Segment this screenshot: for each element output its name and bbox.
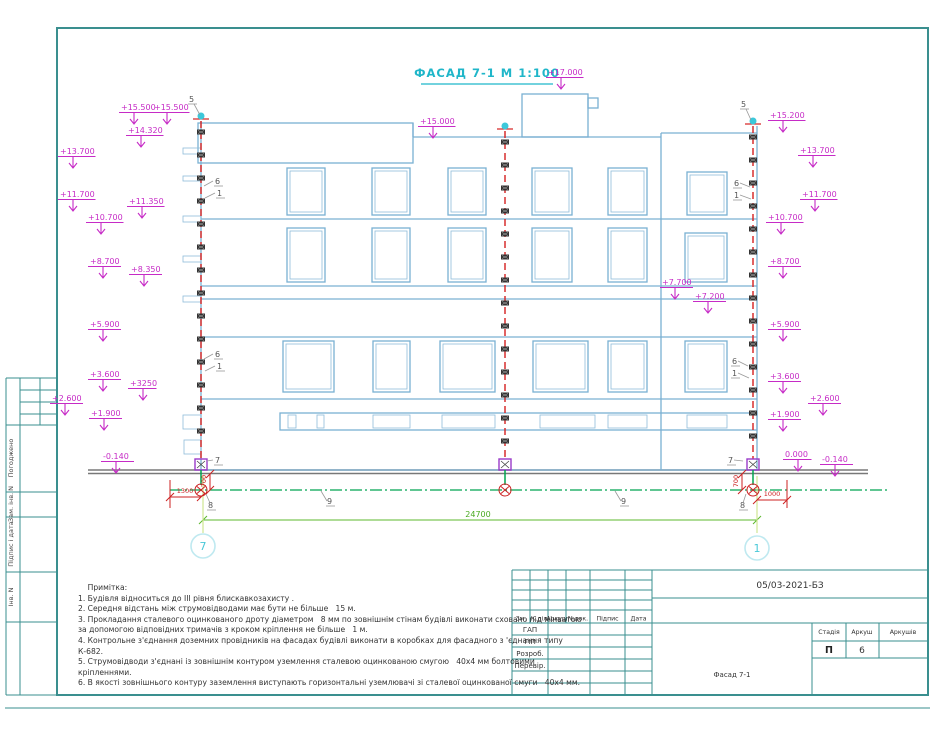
note-line: за допомогою відповідних тримачів з крок… [78,625,518,636]
callout-label: 7 [728,456,733,465]
window [440,341,495,392]
strip-window [687,415,727,428]
strip-window [540,415,595,428]
window-inner [375,231,407,279]
elevation-mark-text: -0.140 [103,452,129,461]
window-inner [286,344,331,389]
callout-leader [207,460,213,461]
elevation-mark-text: +8.700 [90,257,120,266]
red-dimension-text: 1300 [177,487,194,495]
document-number: 05/03-2021-БЗ [756,581,824,591]
side-strip-label: Підпис і дата [7,521,15,566]
elevation-mark-text: +14.320 [128,126,163,135]
callout-label: 1 [732,369,737,378]
strip-window [288,415,296,428]
overall-dimension-value: 24700 [465,510,490,519]
window [685,233,727,282]
strip-window [317,415,324,428]
window [608,168,647,215]
elevation-mark-text: +8.350 [131,265,161,274]
note-line: 2. Середня відстань між струмовідводами … [78,604,518,615]
callout-leader [194,104,200,115]
red-dimension-text: 1000 [764,490,781,498]
elevation-mark-text: +1.900 [91,409,121,418]
elevation-mark-text: +5.900 [90,320,120,329]
sheet-value: 6 [859,646,865,656]
window [373,341,410,392]
drawing-sheet: ФАСАД 7-1 М 1:100 24700 7 1 05/03-2021-Б… [0,0,935,748]
note-line: 1. Будівля відноситься до ІІІ рівня блис… [78,594,518,605]
elevation-mark-text: +1.900 [770,410,800,419]
facade-stub [183,296,201,302]
note-line: Примітка: [78,583,518,594]
callout-label: 8 [208,501,213,510]
window [372,168,410,215]
window-inner [290,171,322,212]
note-line: 6. В якості зовнішнього контуру заземлен… [78,678,518,689]
sheet-label: Аркуш [851,629,873,636]
conductor-cap [502,123,509,130]
elevation-mark-text: +10.700 [88,213,123,222]
elevation-mark-text: +3250 [130,379,157,388]
window-inner [611,171,644,212]
stamp-header-cell: Дата [630,616,646,623]
window-inner [611,344,644,389]
callout-label: 6 [732,357,737,366]
building-rect [588,98,598,108]
red-dimension-text: 700 [732,475,740,487]
elevation-mark-text: +15.000 [420,117,455,126]
drawing-title: ФАСАД 7-1 М 1:100 [414,66,560,80]
window [687,172,727,215]
elevation-mark-text: +15.500 [154,103,189,112]
window [685,341,727,392]
elevation-mark-text: +15.500 [121,103,156,112]
callout-leader [204,354,213,359]
stage-value: П [825,645,833,656]
window [448,168,486,215]
elevation-mark-text: +11.700 [802,190,837,199]
elevation-mark-text: +15.200 [770,111,805,120]
window [283,341,334,392]
window-inner [290,231,322,279]
note-line: К-682. [78,647,518,658]
elevation-mark-text: +5.900 [770,320,800,329]
callout-label: 5 [741,100,746,109]
elevation-mark-text: -0.140 [822,455,848,464]
callout-label: 1 [734,191,739,200]
callout-label: 6 [215,350,220,359]
notes-block: Примітка:1. Будівля відноситься до ІІІ р… [78,583,518,689]
facade-stub [183,415,201,429]
callout-leader [205,193,215,198]
conductor-cap [198,113,205,120]
callout-leader [746,109,751,120]
callout-leader [615,491,621,501]
callout-label: 7 [215,456,220,465]
window-inner [535,231,569,279]
note-line: 5. Струмовідводи з'єднані із зовнішнім к… [78,657,518,668]
window-inner [535,171,569,212]
callout-label: 1 [217,189,222,198]
window-inner [690,175,724,212]
side-strip-label: Погоджено [7,439,15,478]
joint-cross [501,461,509,468]
drawing-name: Фасад 7-1 [714,671,751,679]
elevation-mark-text: +2.600 [810,394,840,403]
side-strip-label: Зам. інв. N [7,486,15,522]
callout-leader [734,460,743,461]
elevation-mark-text: +17.000 [548,68,583,77]
callout-leader [738,373,749,378]
callout-label: 1 [217,362,222,371]
elevation-mark-text: +3.600 [770,372,800,381]
facade-stub [183,216,201,222]
window-inner [536,344,585,389]
facade-stub [183,256,201,262]
callout-label: 6 [734,179,739,188]
window [372,228,410,282]
callout-label: 5 [189,95,194,104]
window-inner [688,236,724,279]
callout-leader [740,195,751,199]
building-rect [198,123,413,163]
ground-electrode-hatch [501,487,509,494]
window-inner [376,344,407,389]
window-inner [451,231,483,279]
strip-window [442,415,495,428]
axis-number-left: 7 [200,540,207,553]
window [532,228,572,282]
red-dimension-lines [166,470,791,508]
callout-leader [740,183,750,187]
callout-leader [321,491,327,501]
callout-leader [204,181,213,186]
window [533,341,588,392]
window [532,168,572,215]
callout-label: 9 [621,497,626,506]
window-inner [443,344,492,389]
window-inner [688,344,724,389]
joint-cross [749,461,757,468]
callout-leader [738,361,748,366]
stamp-header-cell: Підпис [596,615,619,623]
elevation-mark-text: +2.600 [52,394,82,403]
window-inner [375,171,407,212]
strip-window [608,415,647,428]
window [287,228,325,282]
building-rect [280,413,757,430]
callout-label: 6 [215,177,220,186]
stamp-role-label: ГАП [523,626,537,634]
callout-label: 9 [327,497,332,506]
building-rect [522,94,588,137]
elevation-mark-text: +13.700 [800,146,835,155]
window [608,228,647,282]
window [448,228,486,282]
window-inner [451,171,483,212]
window [287,168,325,215]
stage-label: Стадія [818,628,840,636]
elevation-mark-text: +11.350 [129,197,164,206]
callout-leader [205,366,215,371]
elevation-mark-text: +13.700 [60,147,95,156]
window [608,341,647,392]
elevation-mark-text: +7.700 [662,278,692,287]
facade-stub [184,440,201,454]
sheets-label: Аркушів [890,628,917,636]
window-inner [611,231,644,279]
red-dimension-text: 700 [200,475,208,487]
note-line: 3. Прокладання сталевого оцинкованого др… [78,615,518,626]
callout-label: 8 [740,501,745,510]
elevation-mark-text: +7.200 [695,292,725,301]
axis-number-right: 1 [754,542,761,555]
elevation-mark-text: +3.600 [90,370,120,379]
side-strip-label: Інв. N [7,587,15,606]
elevation-mark-text: 0.000 [785,450,808,459]
elevation-mark-text: +11.700 [60,190,95,199]
note-line: 4. Контрольне з'єднання доземних провідн… [78,636,518,647]
note-line: кріпленнями. [78,668,518,679]
strip-window [373,415,410,428]
elevation-mark-text: +8.700 [770,257,800,266]
elevation-mark-text: +10.700 [768,213,803,222]
